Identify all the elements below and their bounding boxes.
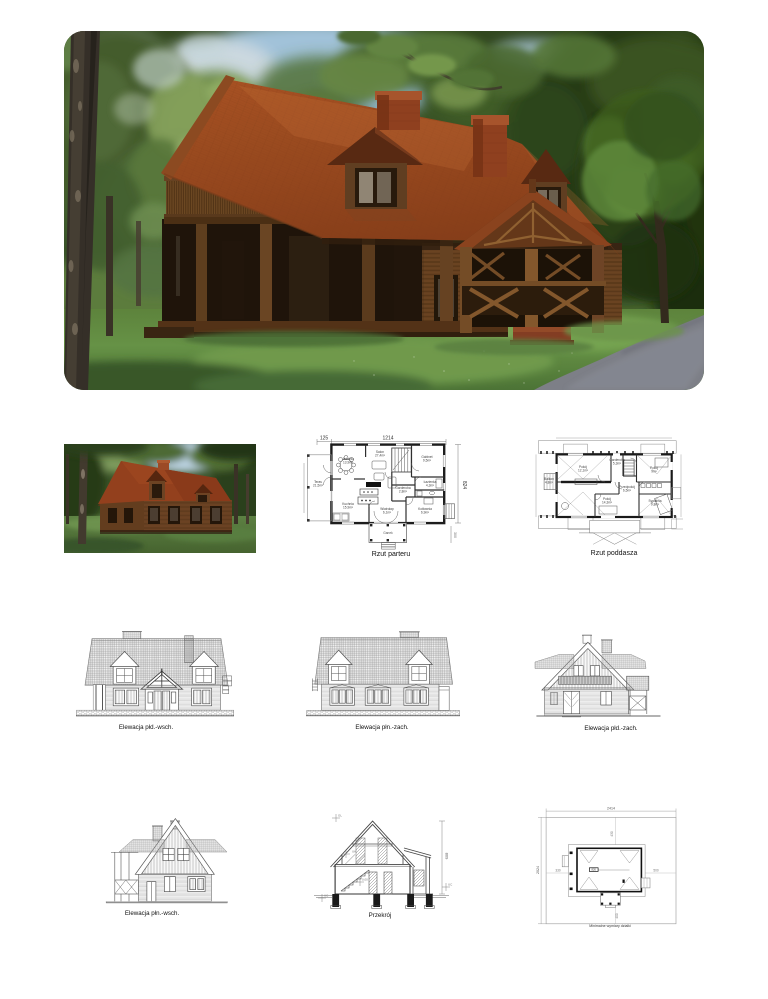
svg-text:15,9m²: 15,9m² [343,506,353,510]
svg-text:4,8m²: 4,8m² [545,481,553,485]
svg-text:2414: 2414 [607,807,615,811]
svg-text:824: 824 [461,481,467,490]
svg-text:2,8m²: 2,8m² [399,489,407,493]
svg-text:826: 826 [592,868,597,872]
svg-text:21,5m²: 21,5m² [313,484,323,488]
svg-text:9m²: 9m² [651,470,657,474]
svg-text:0,00: 0,00 [362,878,368,882]
svg-text:9,5m²: 9,5m² [423,459,431,463]
svg-text:430: 430 [610,831,614,837]
svg-text:6,9m²: 6,9m² [421,511,429,515]
svg-text:5,3m²: 5,3m² [613,462,621,466]
svg-text:27,4m²: 27,4m² [375,454,385,458]
svg-text:809: 809 [445,853,450,860]
svg-text:GL: GL [338,814,342,818]
svg-text:14,3m²: 14,3m² [602,501,612,505]
svg-text:12,1m²: 12,1m² [578,469,588,473]
svg-text:125: 125 [320,436,329,442]
svg-text:330: 330 [555,869,561,873]
svg-text:UK: UK [352,850,356,854]
svg-text:400: 400 [615,913,619,919]
svg-text:9,8m²: 9,8m² [651,503,659,507]
svg-text:2024: 2024 [536,866,540,874]
svg-text:1214: 1214 [382,436,393,442]
svg-text:300: 300 [453,532,457,538]
svg-text:4,3m²: 4,3m² [426,483,434,487]
svg-text:6,1m²: 6,1m² [383,511,391,515]
svg-text:Ganek: Ganek [383,531,393,535]
svg-text:6,5m²: 6,5m² [623,489,631,493]
svg-text:UC: UC [448,883,453,887]
svg-text:13,9m²: 13,9m² [343,461,353,465]
svg-text:500: 500 [653,869,659,873]
